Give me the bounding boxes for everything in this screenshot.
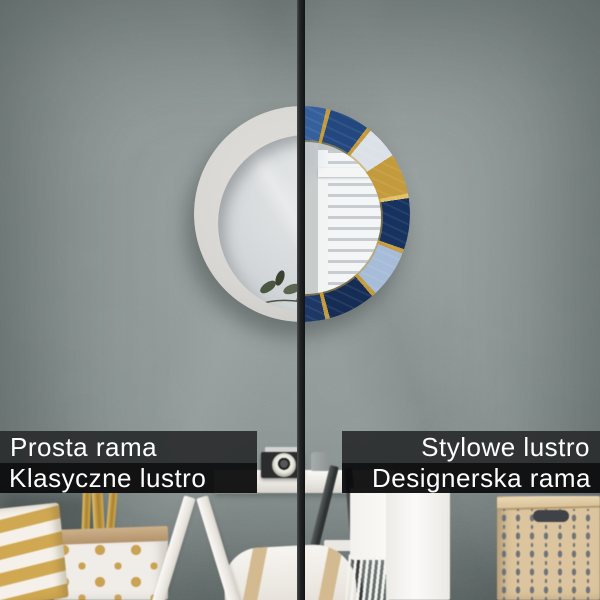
product-comparison-photo: Prosta rama Klasyczne lustro Stylowe lus…: [0, 0, 600, 600]
gift-bag-dotted: [52, 536, 168, 600]
label-bar-right-top: Stylowe lustro: [342, 431, 600, 463]
label-bar-left-top: Prosta rama: [0, 431, 257, 463]
pillow-stripes: [222, 543, 357, 600]
label-left-line1: Prosta rama: [10, 432, 157, 463]
hanging-towel: [386, 488, 450, 600]
table-leg: [196, 495, 240, 600]
split-divider-bar: [297, 0, 305, 600]
hanging-scarf: [350, 488, 390, 560]
label-right-line1: Stylowe lustro: [421, 432, 590, 463]
box-diamond-pattern: [497, 509, 600, 600]
storage-box: [497, 496, 600, 600]
label-bar-right-bottom: Designerska rama: [342, 463, 600, 493]
box-handle: [533, 510, 569, 522]
camera-lens: [272, 453, 296, 477]
label-left-line2: Klasyczne lustro: [9, 463, 206, 494]
gift-bag-striped: [0, 502, 69, 600]
shelf-ornament: [311, 452, 329, 471]
label-right-line2: Designerska rama: [372, 463, 591, 494]
striped-pillow: [222, 543, 357, 600]
label-bar-left-bottom: Klasyczne lustro: [0, 463, 257, 493]
gold-dots: [52, 536, 168, 600]
